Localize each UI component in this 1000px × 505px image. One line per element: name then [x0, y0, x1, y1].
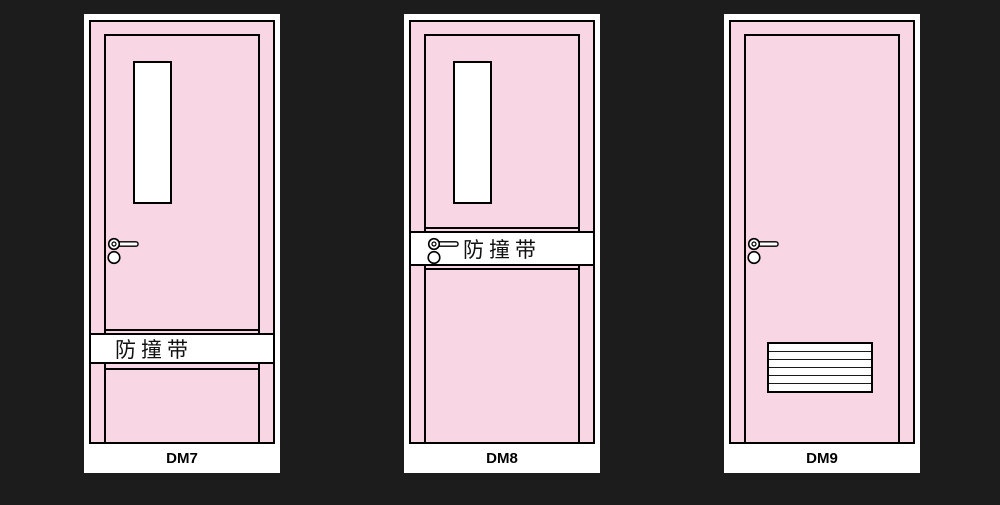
- door-model-label: DM8: [404, 444, 600, 473]
- panel-rail-line: [104, 329, 260, 331]
- panel-rail-line: [104, 368, 260, 370]
- door-model-label: DM9: [724, 444, 920, 473]
- door-unit-dm8: 防撞带 DM8: [404, 14, 600, 473]
- anti-collision-band-label: 防撞带: [91, 334, 273, 364]
- door-slab: [729, 20, 915, 444]
- door-handle-icon: [746, 236, 786, 266]
- door-handle-icon: [106, 236, 146, 266]
- anti-collision-band: 防撞带: [91, 333, 273, 364]
- louver-slat: [769, 383, 871, 391]
- louver-slat: [769, 344, 871, 351]
- louver-slat: [769, 351, 871, 359]
- door-slab: 防撞带: [89, 20, 275, 444]
- door-catalog-canvas: 防撞带 DM7 防撞带 DM8: [0, 0, 1000, 505]
- door-slab: 防撞带: [409, 20, 595, 444]
- door-handle-icon: [426, 236, 466, 266]
- vision-panel-window: [133, 61, 172, 204]
- louver-slat: [769, 367, 871, 375]
- door-unit-dm7: 防撞带 DM7: [84, 14, 280, 473]
- louver-slat: [769, 375, 871, 383]
- panel-rail-line: [424, 227, 580, 229]
- panel-rail-line: [424, 268, 580, 270]
- vision-panel-window: [453, 61, 492, 204]
- louver-slat: [769, 359, 871, 367]
- door-model-label: DM7: [84, 444, 280, 473]
- ventilation-louver: [767, 342, 873, 393]
- door-unit-dm9: DM9: [724, 14, 920, 473]
